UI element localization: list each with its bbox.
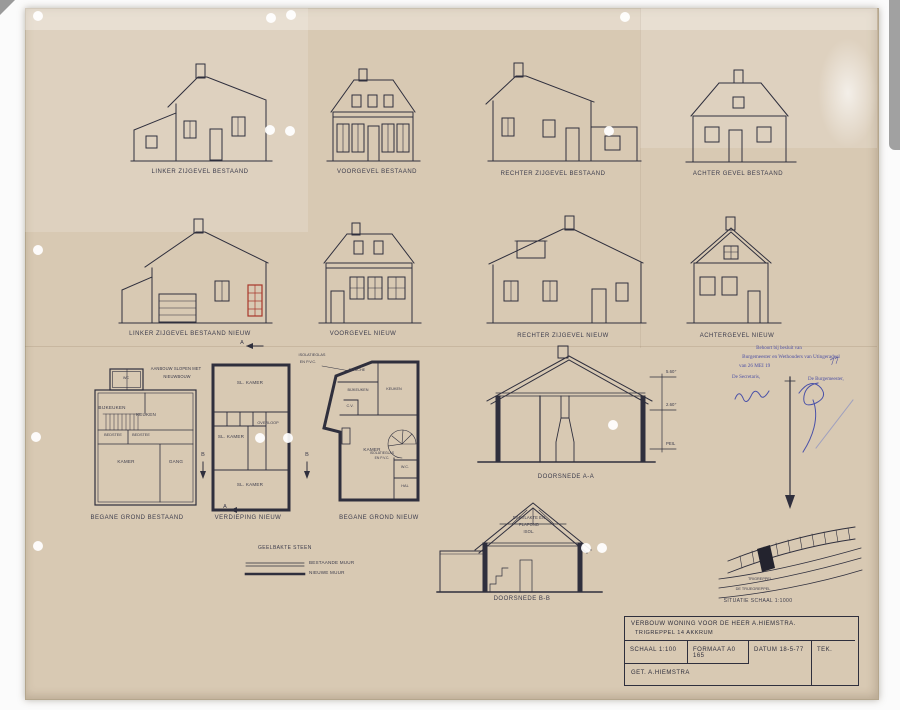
- scan-dot: [33, 11, 43, 21]
- caption-linker-zijgevel-bestaand: LINKER ZIJGEVEL BESTAAND: [151, 169, 248, 175]
- scan-dot: [608, 420, 618, 430]
- room-label-wc-nieuw: W.C.: [401, 465, 409, 469]
- caption-begane-grond-bestaand: BEGANE GROND BESTAAND: [90, 515, 183, 521]
- stamp-line3: van 26 MEI 19: [739, 363, 770, 369]
- room-label-bedstee-2: BEDSTEE: [132, 433, 150, 437]
- scan-dot: [283, 433, 293, 443]
- room-label-gang: GANG: [169, 459, 183, 464]
- room-label-hal: HAL: [401, 484, 408, 488]
- room-label-bedstee-1: BEDSTEE: [104, 433, 122, 437]
- stamp-line2: Burgemeester en Wethouders van Utingerad…: [742, 354, 840, 360]
- scan-dot: [620, 12, 630, 22]
- section-bb-note-line1: DAKVLAKTE EN: [513, 515, 545, 520]
- scanned-drawing-sheet: LINKER ZIJGEVEL BESTAAND VOORGEVEL BESTA…: [0, 0, 900, 710]
- room-label-wc: WC: [123, 376, 129, 380]
- section-bb-note-line2: PLAFOND: [519, 522, 539, 527]
- titleblock-datum: DATUM 18-5-77: [749, 641, 812, 685]
- scanner-corner-artifact: [0, 0, 15, 15]
- plan-bestaand-note-line2: NIEUWBOUW: [163, 374, 190, 379]
- caption-begane-grond-nieuw: BEGANE GROND NIEUW: [339, 515, 419, 521]
- stamp-secretaris: De Secretaris,: [732, 375, 760, 380]
- scan-dot: [286, 10, 296, 20]
- section-marker-a-bottom: A: [223, 504, 227, 510]
- stamp-burgemeester: De Burgemeester,: [808, 377, 844, 382]
- project-title-line1: VERBOUW WONING VOOR DE HEER A.HIEMSTRA.: [631, 620, 855, 629]
- titleblock-schaal: SCHAAL 1:100: [625, 641, 688, 663]
- room-label-bijkeuken: BIJKEUKEN: [98, 405, 125, 410]
- section-marker-a-top: A: [240, 340, 244, 346]
- legend-existing-wall: BESTAANDE MUUR: [309, 560, 354, 565]
- caption-doorsnede-bb: DOORSNEDE B-B: [494, 596, 551, 602]
- scan-dot: [581, 543, 591, 553]
- situatie-road2-label: DE TRIJEGREPPEL: [736, 587, 771, 591]
- section-marker-b-right: B: [305, 452, 309, 458]
- plan-nieuw-note2-line2: EN P.V.C.: [375, 456, 390, 460]
- section-marker-b-left: B: [201, 452, 205, 458]
- legend-new-wall: NIEUWE MUUR: [309, 570, 345, 575]
- situatie-road1-label: TRIGREPPEL: [748, 577, 772, 581]
- room-label-slkamer-2: SL. KAMER: [218, 434, 244, 439]
- scan-dot: [266, 13, 276, 23]
- stamp-line1: Behoort bij besluit van: [756, 346, 802, 351]
- titleblock-tek: TEK.: [812, 641, 855, 685]
- scanner-edge-artifact: [889, 0, 900, 150]
- caption-achtergevel-nieuw: ACHTERGEVEL NIEUW: [700, 333, 775, 339]
- room-label-keuken: KEUKEN: [136, 412, 156, 417]
- title-block-project: VERBOUW WONING VOOR DE HEER A.HIEMSTRA. …: [625, 617, 855, 641]
- scan-dot: [604, 126, 614, 136]
- scan-dot: [33, 245, 43, 255]
- caption-linker-zijgevel-nieuw: LINKER ZIJGEVEL BESTAAND NIEUW: [129, 331, 251, 337]
- scan-dot: [285, 126, 295, 136]
- scan-dot: [265, 125, 275, 135]
- section-bb-note-line3: ISOL.: [524, 529, 535, 534]
- plan-nieuw-note2-line1: ISOLATIEGLAS: [370, 451, 394, 455]
- room-label-keuken-nieuw: KEUKEN: [386, 387, 402, 391]
- room-label-slkamer-3: SL. KAMER: [237, 482, 263, 487]
- caption-rechter-zijgevel-bestaand: RECHTER ZIJGEVEL BESTAAND: [501, 171, 606, 177]
- caption-rechter-zijgevel-nieuw: RECHTER ZIJGEVEL NIEUW: [517, 333, 608, 339]
- room-label-bijkeuken-nieuw: BIJKEUKEN: [347, 388, 368, 392]
- scan-dot: [255, 433, 265, 443]
- level-mark-mid: 2.60⁺: [666, 402, 677, 408]
- title-block: VERBOUW WONING VOOR DE HEER A.HIEMSTRA. …: [624, 616, 859, 686]
- room-label-cv: C.V.: [346, 404, 353, 408]
- caption-voorgevel-bestaand: VOORGEVEL BESTAAND: [337, 169, 417, 175]
- plan-bestaand-note-line1: AANBOUW SLOPEN MET: [151, 366, 201, 371]
- room-label-kamer-bestaand: KAMER: [117, 459, 134, 464]
- caption-verdieping-nieuw: VERDIEPING NIEUW: [215, 515, 282, 521]
- room-label-overloop: OVERLOOP: [257, 421, 278, 425]
- caption-doorsnede-aa: DOORSNEDE A-A: [538, 474, 595, 480]
- legend-heading: GEELBAKTE STEEN: [258, 545, 312, 551]
- caption-achter-gevel-bestaand: ACHTER GEVEL BESTAAND: [693, 171, 783, 177]
- level-mark-peil: PEIL: [666, 441, 675, 446]
- plan-nieuw-note1-line1: ISOLATIEGLAS: [299, 353, 326, 357]
- project-title-line2: TRIGREPPEL 14 AKKRUM: [631, 629, 855, 638]
- caption-voorgevel-nieuw: VOORGEVEL NIEUW: [330, 331, 397, 337]
- level-mark-top: 5.60⁺: [666, 369, 677, 375]
- titleblock-formaat: FORMAAT A0 165: [688, 641, 749, 663]
- scan-dot: [31, 432, 41, 442]
- room-label-slkamer-1: SL. KAMER: [237, 380, 263, 385]
- room-label-douche: DOUCHE: [349, 368, 365, 372]
- titleblock-getekend: GET. A.HIEMSTRA: [625, 663, 749, 685]
- scan-dot: [597, 543, 607, 553]
- plan-nieuw-note1-line2: EN P.V.C.: [300, 360, 316, 364]
- situatie-caption: SITUATIE SCHAAL 1:1000: [724, 598, 793, 604]
- scan-dot: [33, 541, 43, 551]
